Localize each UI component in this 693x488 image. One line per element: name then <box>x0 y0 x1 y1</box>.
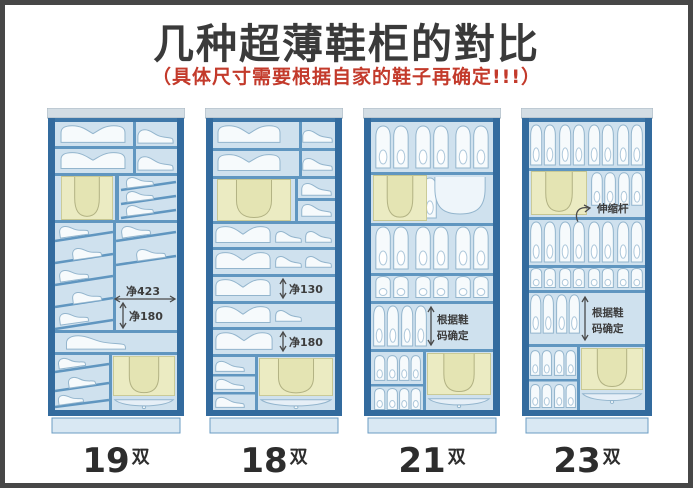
cabinet-3-label: 21双 <box>363 441 501 485</box>
page-frame: 几种超薄鞋柜的對比 （具体尺寸需要根据自家的鞋子再确定!!!） <box>0 0 693 488</box>
boot-compartment <box>113 356 174 395</box>
boot-compartment <box>581 348 642 389</box>
boot-compartment <box>259 358 332 395</box>
boot-compartment <box>217 179 290 220</box>
boot-compartment <box>427 353 490 394</box>
cabinet-4-count: 23 <box>553 441 600 481</box>
boot-bucket-icon <box>435 177 485 214</box>
cabinet-2-unit: 双 <box>290 447 308 468</box>
cabinet-4-diagram: 伸缩杆 根据鞋 码确定 <box>521 108 653 438</box>
page-subtitle: （具体尺寸需要根据自家的鞋子再确定!!!） <box>5 62 688 89</box>
cabinet-2-diagram: 净130 净180 <box>205 108 343 438</box>
svg-text:根据鞋: 根据鞋 <box>437 313 469 326</box>
page-title: 几种超薄鞋柜的對比 <box>5 10 688 70</box>
svg-text:净180: 净180 <box>129 309 163 323</box>
svg-text:净130: 净130 <box>289 282 323 296</box>
c2-bottom-section <box>213 357 333 410</box>
cabinet-3-unit: 双 <box>448 447 466 468</box>
cabinet-2-label: 18双 <box>205 441 343 485</box>
cabinet-3-diagram: 根据鞋 码确定 <box>363 108 501 438</box>
boot-compartment <box>373 175 426 220</box>
cabinet-2-count: 18 <box>240 441 287 481</box>
cabinet-3-count: 21 <box>398 441 445 481</box>
svg-text:净180: 净180 <box>289 335 323 349</box>
svg-text:码确定: 码确定 <box>437 329 469 342</box>
svg-text:伸缩杆: 伸缩杆 <box>596 202 629 215</box>
cabinet-1-unit: 双 <box>132 447 150 468</box>
boot-compartment <box>531 171 586 214</box>
cabinet-4-unit: 双 <box>603 447 621 468</box>
cabinet-1-count: 19 <box>82 441 129 481</box>
svg-text:码确定: 码确定 <box>592 322 624 335</box>
cabinet-4-label: 23双 <box>521 441 653 485</box>
svg-text:净423: 净423 <box>126 284 160 298</box>
svg-text:根据鞋: 根据鞋 <box>592 306 624 319</box>
boot-compartment <box>61 176 112 219</box>
cabinet-1-label: 19双 <box>47 441 185 485</box>
cabinet-1-diagram: 净423 净180 <box>47 108 185 438</box>
